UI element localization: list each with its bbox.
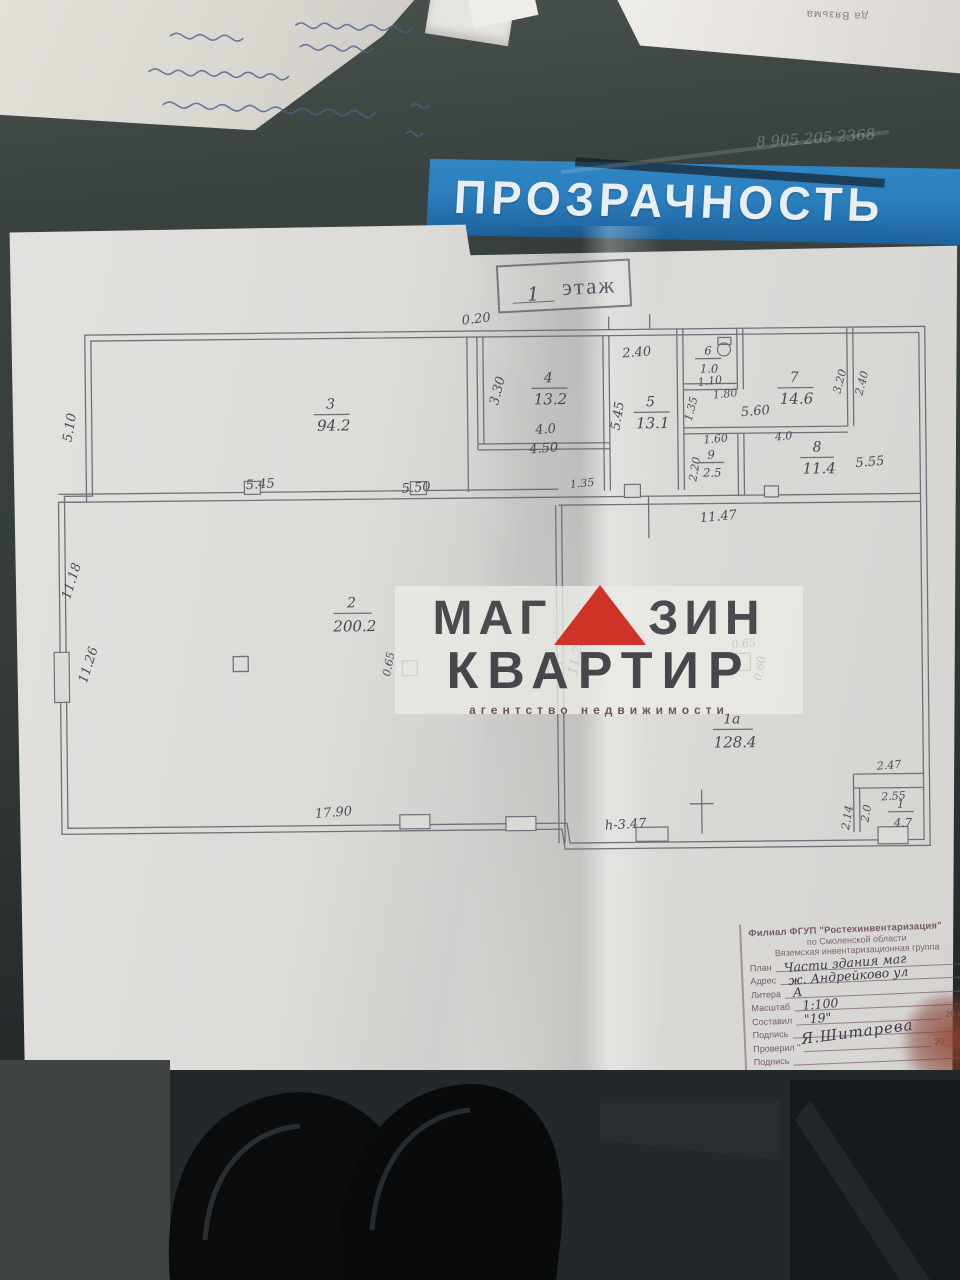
floor-title-stamp: 1 этаж bbox=[496, 259, 632, 314]
floor-word: этаж bbox=[561, 272, 617, 301]
handwritten-value: 1:100 bbox=[802, 998, 839, 1011]
handwritten-note-ink bbox=[0, 0, 460, 150]
watermark-text2: КВАРТИР bbox=[446, 645, 751, 697]
watermark-tagline: агентство недвижимости bbox=[469, 704, 729, 716]
handwritten-value: А bbox=[792, 987, 802, 998]
floor-and-boots bbox=[0, 1040, 960, 1280]
photo-of-floor-plan: да Вязьма 8 905 205 2368 ПРОЗРАЧНОСТЬ bbox=[0, 0, 960, 1280]
floor-number: 1 bbox=[512, 287, 555, 304]
red-triangle-logo-icon bbox=[554, 585, 646, 645]
watermark-text: ЗИН bbox=[648, 595, 765, 643]
watermark-text: МАГ bbox=[432, 595, 552, 643]
agency-watermark: МАГ ЗИН КВАРТИР агентство недвижимости bbox=[395, 586, 803, 714]
handwritten-value: "19" bbox=[804, 1012, 832, 1024]
